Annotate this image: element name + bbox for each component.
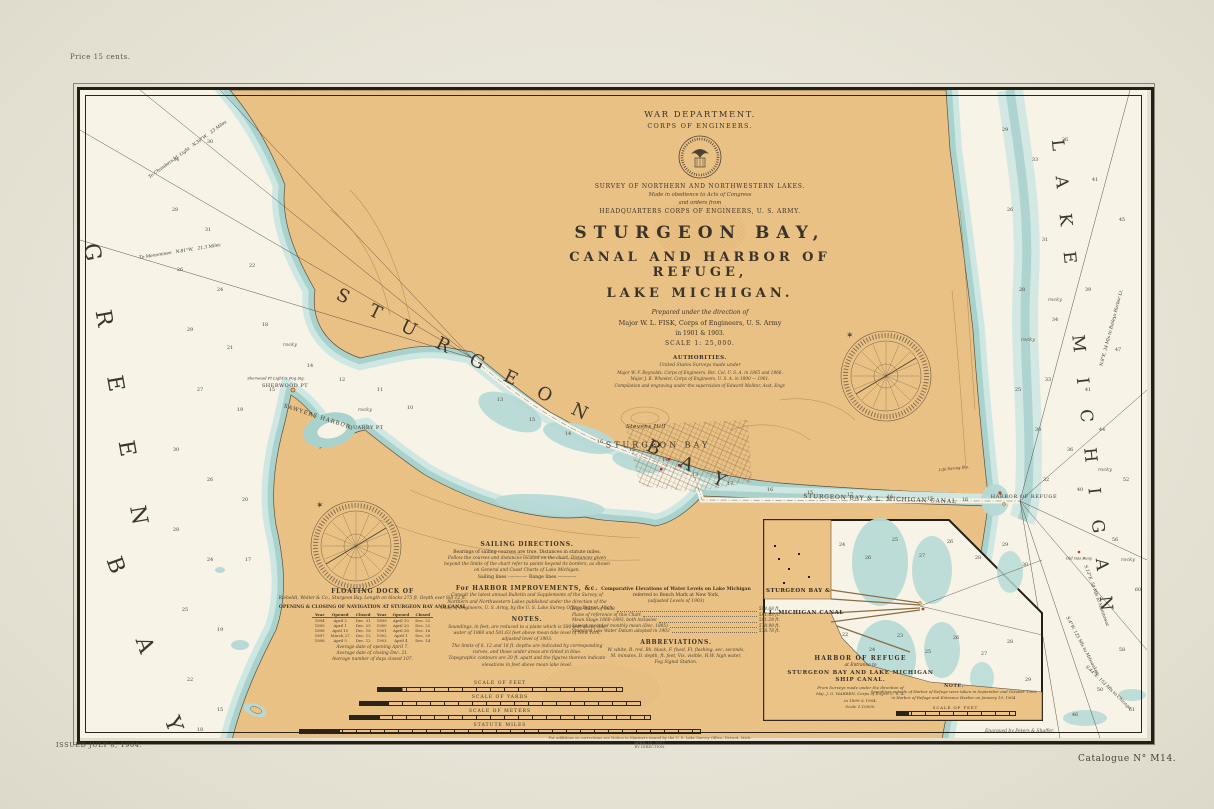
chart-title-line1: STURGEON BAY,: [540, 223, 860, 243]
chart-title-line2: CANAL AND HARBOR OF REFUGE,: [540, 250, 860, 280]
nav-table-cell: 1903: [374, 638, 390, 643]
engraver-credit: Engraved by Peters & Shaffer.: [985, 729, 1054, 734]
survey-line: SURVEY OF NORTHERN AND NORTHWESTERN LAKE…: [540, 183, 860, 190]
navigation-table: YearOpenedClosedYearOpenedClosed1894Apri…: [312, 612, 434, 643]
authority-2: Major J. B. Wheeler, Corps of Engineers,…: [540, 376, 860, 381]
nav-table-cell: Dec. 14: [412, 638, 433, 643]
nav-table-cell: April 5: [328, 638, 353, 643]
inset-scale-label: SCALE OF FEET: [893, 705, 1018, 710]
inset-title-2: at Entrance to: [778, 663, 943, 668]
inset-title-3: STURGEON BAY AND LAKE MICHIGAN: [778, 670, 943, 676]
sailing-line: beyond the limits of the chart refer to …: [408, 562, 646, 567]
title-block: WAR DEPARTMENT. CORPS OF ENGINEERS. SURV…: [540, 110, 860, 388]
engineers-seal-icon: [677, 134, 723, 180]
inset-scale-bar: [896, 711, 1016, 716]
prepared-line: Prepared under the direction of: [540, 309, 860, 316]
corps-line: CORPS OF ENGINEERS.: [540, 122, 860, 130]
elevations-heading: Comparative Elevations of Water Levels o…: [572, 587, 780, 592]
correction-note: For additions or corrections see Notice …: [540, 736, 760, 750]
orders-line: and orders from: [540, 200, 860, 206]
chart-sheet: Price 15 cents.: [0, 0, 1214, 809]
years-line: in 1901 & 1903.: [540, 330, 860, 337]
war-department-line: WAR DEPARTMENT.: [540, 110, 860, 120]
scale-of-feet-label: SCALE OF FEET: [290, 681, 710, 686]
authority-1: Major W. F. Reynolds, Corps of Engineers…: [540, 370, 860, 375]
inset-title-4: SHIP CANAL.: [778, 677, 943, 683]
abbreviation-line: M. minutes, D. depth, ft. feet, Vis. vis…: [572, 654, 780, 659]
nav-table-cell: April 4: [390, 638, 413, 643]
elevations-block: Comparative Elevations of Water Levels o…: [572, 585, 780, 666]
inset-note-line: in Harbor of Refuge and Entrance Harbor …: [868, 696, 1040, 701]
nav-table-header: Opened: [390, 612, 413, 618]
inset-title-block: HARBOR OF REFUGE at Entrance to STURGEON…: [778, 655, 943, 709]
abbreviation-line: W. white, R. red, Bk. black, F. fixed, F…: [572, 648, 780, 653]
scale-of-meters-label: SCALE OF METERS: [290, 709, 710, 714]
floating-dock-heading: FLOATING DOCK OF: [270, 588, 475, 595]
obedience-line: Made in obedience to Acts of Congress: [540, 192, 860, 198]
inset-title-1: HARBOR OF REFUGE: [778, 655, 943, 662]
scale-of-yards-label: SCALE OF YARDS: [290, 695, 710, 700]
headquarters-line: HEADQUARTERS CORPS OF ENGINEERS, U. S. A…: [540, 208, 860, 215]
floating-dock-line: Rieboldt, Wolter & Co., Sturgeon Bay. Le…: [270, 596, 475, 601]
inset-canal-label-1: STURGEON BAY &: [766, 588, 831, 594]
nav-table-cell: Dec. 12: [353, 638, 374, 643]
nav-table-row: 1898April 5Dec. 121903April 4Dec. 14: [312, 638, 434, 643]
navigation-footnote: Average date of closing Dec. 21.: [270, 651, 475, 656]
elevations-table: High Water of 1838584.68 ft.Plane of ref…: [572, 607, 780, 634]
navigation-footnote: Average number of days closed 107.: [270, 657, 475, 662]
sailing-line: Follow the courses and distances located…: [408, 556, 646, 561]
correction-line-3: BY DIRECTION.: [540, 745, 760, 750]
inset-note-block: NOTE. Soundings outside of Harbor of Ref…: [868, 684, 1040, 700]
statute-miles-bar: [299, 729, 701, 734]
elevations-subheading: referred to Bench Mark at New York,: [572, 593, 780, 598]
elevations-subheading2: (adjusted Levels of 1903): [572, 599, 780, 604]
navigation-table-heading: OPENING & CLOSING OF NAVIGATION AT STURG…: [270, 605, 475, 610]
inset-scale-block: SCALE OF FEET: [893, 705, 1018, 716]
chart-title-line3: LAKE MICHIGAN.: [540, 286, 860, 301]
statute-miles-label: STATUTE MILES: [290, 723, 710, 728]
scale-of-meters-bar: [349, 715, 651, 720]
scale-line: SCALE 1: 25,000.: [540, 340, 860, 347]
authorities-subline: United States Surveys made under: [540, 363, 860, 368]
abbreviations-heading: ABBREVIATIONS.: [572, 639, 780, 646]
authorities-heading: AUTHORITIES.: [540, 355, 860, 361]
navigation-footnote: Average date of opening April 7.: [270, 645, 475, 650]
inset-note-line: Soundings outside of Harbor of Refuge we…: [868, 690, 1040, 695]
authority-3: Compilation and engraving under the supe…: [540, 383, 860, 388]
issued-date: ISSUED JULY 8, 1904.: [56, 741, 142, 749]
scale-bars-block: SCALE OF FEET SCALE OF YARDS SCALE OF ME…: [290, 678, 710, 734]
nav-table-cell: 1898: [312, 638, 328, 643]
major-line: Major W. L. FISK, Corps of Engineers, U.…: [540, 319, 860, 327]
sailing-line: on General and Coast Charts of Lake Mich…: [408, 568, 646, 573]
sailing-legend: Sailing lines ·—·—·—· Range lines ————: [408, 575, 646, 580]
price-note: Price 15 cents.: [70, 53, 130, 61]
inset-canal-label-2: L. MICHIGAN CANAL: [769, 610, 844, 616]
elevation-row: Standard Low Water Datum adopted in 1903…: [572, 629, 780, 634]
floating-dock-block: FLOATING DOCK OF Rieboldt, Wolter & Co.,…: [270, 588, 475, 663]
city-street-grid: [625, 420, 752, 492]
catalogue-number: Catalogue N° M14.: [1078, 754, 1176, 764]
sailing-line: Bearings of sailing courses are true. Di…: [408, 550, 646, 555]
scale-of-yards-bar: [359, 701, 641, 706]
sailing-directions-heading: SAILING DIRECTIONS.: [408, 541, 646, 548]
abbreviation-line: Fog Signal Station.: [572, 660, 780, 665]
scale-of-feet-bar: [377, 687, 623, 692]
